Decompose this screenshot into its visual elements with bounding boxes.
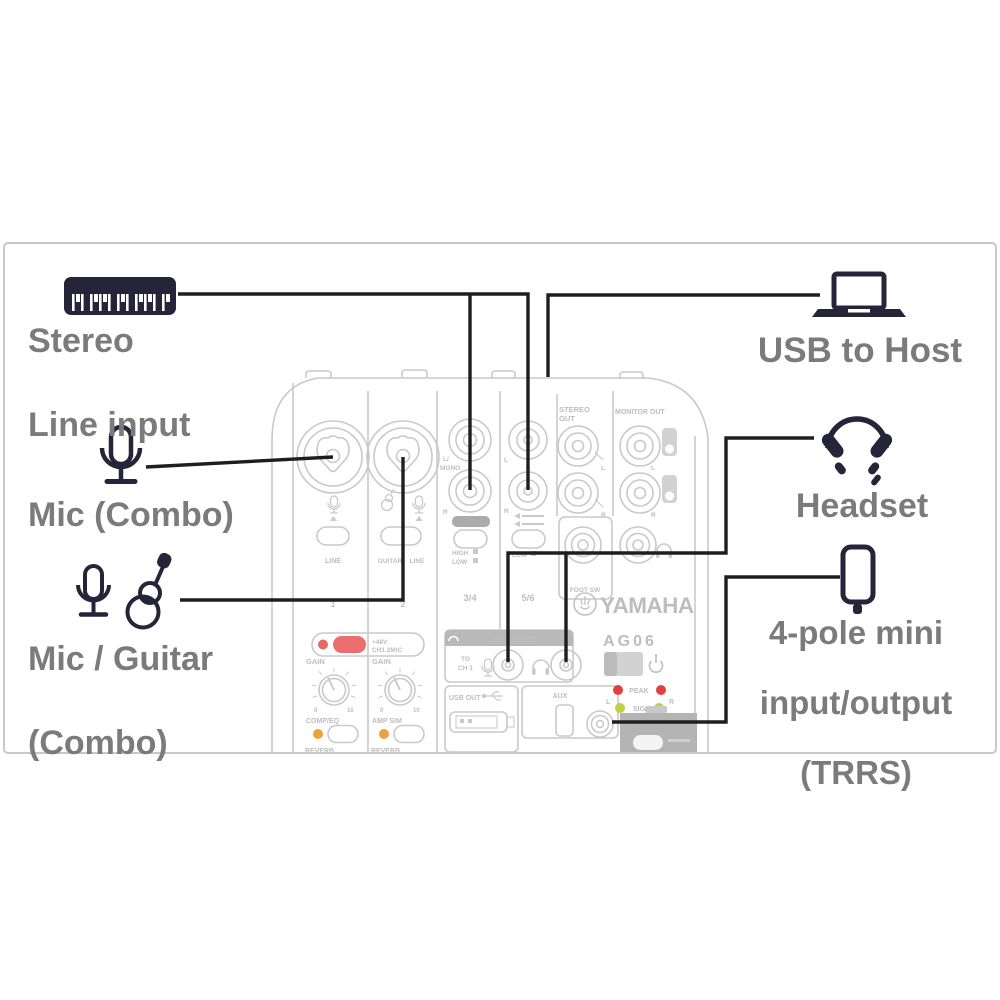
- trrs-label-line2: input/output: [760, 684, 952, 721]
- monitor-out-l: L: [651, 465, 655, 472]
- r-label-34: R: [443, 509, 448, 516]
- phantom-label-1: +48V: [372, 639, 388, 646]
- ch34-label: 3/4: [463, 593, 477, 604]
- monitor-out-label: MONITOR OUT: [615, 409, 665, 416]
- ch56-label: 5/6: [521, 593, 534, 604]
- headset-label: Headset: [745, 485, 979, 527]
- monitor-out-r: R: [651, 512, 656, 519]
- aux-label: AUX: [553, 693, 568, 700]
- stereo-out-l: L: [601, 465, 605, 472]
- model-text: AG06: [603, 633, 657, 650]
- to-ch1-label-2: CH 1: [458, 665, 473, 672]
- low-label-34: LOW: [452, 559, 468, 566]
- line-label-ch2: LINE: [410, 558, 425, 565]
- stereo-line-input-label-line2: Line input: [28, 406, 190, 444]
- to-ch1-label-1: TO: [461, 656, 470, 663]
- phantom-label-2: CH1 2MIC: [372, 647, 403, 654]
- usb-to-host-label: USB to Host: [745, 330, 975, 372]
- peak-label: PEAK: [629, 688, 648, 695]
- gain-label-2: GAIN: [372, 657, 391, 666]
- usb-out-label: USB OUT: [449, 695, 481, 702]
- high-label: HIGH: [452, 550, 469, 557]
- trrs-label-line3: (TRRS): [800, 754, 912, 791]
- l-mono-label-2: MONO: [440, 465, 460, 472]
- bottom-dark-panel: [620, 713, 697, 752]
- comp-eq-label: COMP/EQ: [306, 718, 340, 725]
- trrs-label: 4-pole mini input/output (TRRS): [730, 615, 982, 790]
- keyboard-icon: [64, 277, 176, 315]
- trrs-label-line1: 4-pole mini: [769, 614, 943, 651]
- l-mono-label-1: L/: [443, 456, 449, 463]
- amp-sim-label: AMP SIM: [372, 718, 402, 725]
- led-l-label: L: [606, 699, 611, 706]
- diagram-canvas: LINE 1 GUITAR LINE 2 L/ MONO R HIGH LOW …: [0, 0, 1000, 1000]
- stereo-out-r: R: [601, 512, 606, 519]
- mic-guitar-combo-label: Mic / Guitar (Combo): [28, 638, 213, 764]
- brand-text: YAMAHA: [600, 593, 694, 618]
- sig-label: SIG: [633, 706, 646, 713]
- svg-text:10: 10: [347, 708, 354, 714]
- stereo-out-label-2: OUT: [559, 414, 575, 423]
- guitar-label-ch2: GUITAR: [378, 558, 403, 565]
- led-r-label: R: [669, 699, 674, 706]
- r-label-56: R: [504, 508, 509, 515]
- stereo-line-input-label: Stereo Line input: [28, 320, 190, 446]
- svg-text:10: 10: [413, 708, 420, 714]
- mic-guitar-label-line1: Mic / Guitar: [28, 640, 213, 678]
- gain-label-1: GAIN: [306, 657, 325, 666]
- line-label-ch1: LINE: [325, 558, 341, 565]
- mic-guitar-label-line2: (Combo): [28, 724, 168, 762]
- l-label-56: L: [504, 457, 508, 464]
- headset-section-label: HEADSET: [492, 635, 536, 645]
- stereo-out-label-1: STEREO: [559, 405, 590, 414]
- stereo-line-input-label-line1: Stereo: [28, 322, 134, 360]
- mic-combo-label: Mic (Combo): [28, 494, 234, 536]
- ch34-badge: [452, 516, 490, 527]
